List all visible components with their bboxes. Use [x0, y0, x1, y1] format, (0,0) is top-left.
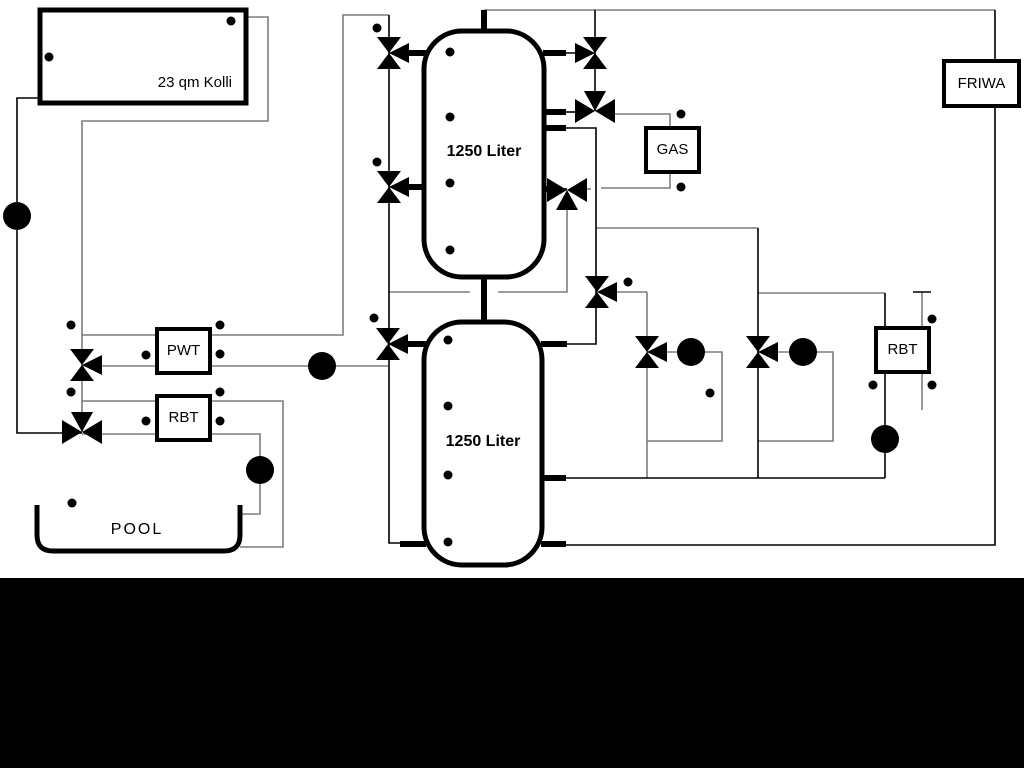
friwa-label: FRIWA: [944, 75, 1019, 92]
three-way-valve-icon: [575, 91, 615, 123]
buffer-tank-bottom-label: 1250 Liter: [424, 433, 542, 451]
pump-icon-left: [308, 352, 336, 380]
three-way-valve-icon: [547, 178, 587, 210]
three-way-valve-icon: [376, 328, 408, 360]
gas-label: GAS: [646, 141, 699, 158]
collector-label: 23 qm Kolli: [60, 74, 232, 91]
three-way-valve-icon: [377, 37, 409, 69]
pump-icon-right: [677, 338, 705, 366]
bottom-black-bar: [0, 578, 1024, 768]
pump-icon-down: [871, 425, 899, 453]
hydraulic-schematic: 23 qm Kolli 1250 Liter 1250 Liter PWT RB…: [0, 0, 1024, 768]
three-way-valve-icon: [585, 276, 617, 308]
three-way-valve-icon: [635, 336, 667, 368]
rbt-right-label: RBT: [876, 341, 929, 358]
three-way-valve-icon: [575, 37, 607, 69]
pump-icon-up: [3, 202, 31, 230]
buffer-tank-top-label: 1250 Liter: [424, 143, 544, 161]
rbt-left-label: RBT: [157, 409, 210, 426]
three-way-valve-icon: [377, 171, 409, 203]
three-way-valve-icon: [62, 412, 102, 444]
pump-icon-right: [789, 338, 817, 366]
pool-label: POOL: [47, 521, 227, 539]
three-way-valve-icon: [70, 349, 102, 381]
pwt-label: PWT: [157, 342, 210, 359]
three-way-valve-icon: [746, 336, 778, 368]
pump-icon-up: [246, 456, 274, 484]
